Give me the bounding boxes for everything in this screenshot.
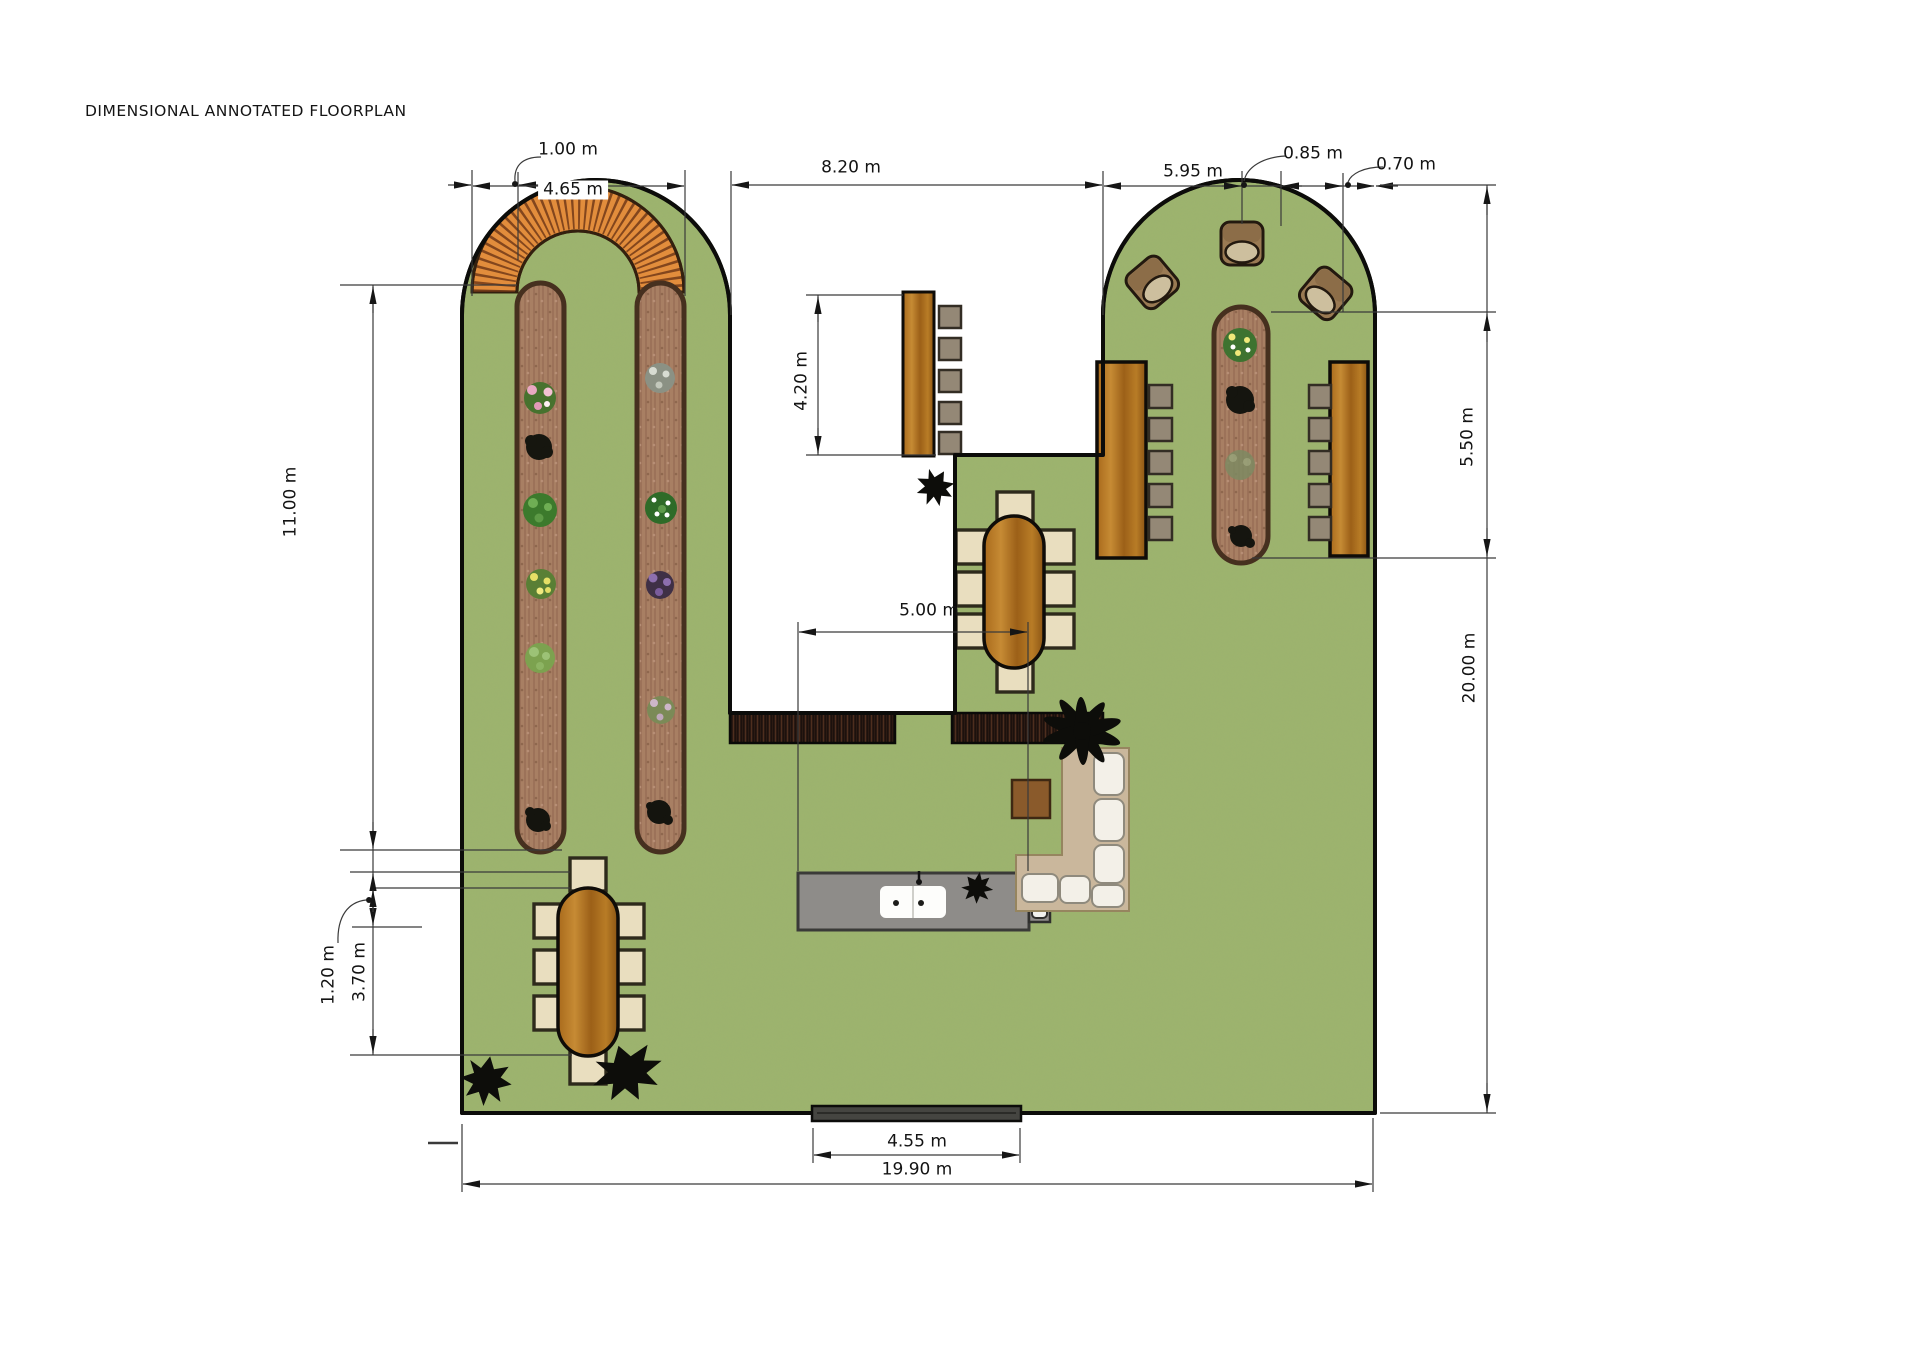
barrel-planter [1221,222,1263,265]
entry-step [812,1106,1021,1121]
dim-label-courtyard-width: 8.20 m [821,160,881,177]
dim-label-site-width: 19.90 m [882,1162,953,1179]
floorplan-drawing [0,0,1920,1357]
dining-table [558,888,618,1056]
dim-label-arc-diameter: 4.65 m [538,181,608,200]
dim-label-planter-width: 0.85 m [1283,146,1343,163]
dining-table [984,516,1044,668]
dim-label-table-offset: 1.20 m [321,945,338,1005]
dim-label-arc-band-width: 1.00 m [538,142,598,159]
coffee-table [1012,780,1050,818]
dim-label-site-height: 20.00 m [1462,633,1479,704]
dim-label-left-bed-length: 11.00 m [283,467,300,538]
page-title: DIMENSIONAL ANNOTATED FLOORPLAN [85,102,407,120]
bench-table-right [1330,362,1368,556]
kitchen-island [798,871,1050,930]
courtyard-potting-table [903,292,961,456]
dim-label-right-lobe-width: 5.95 m [1163,164,1223,181]
dim-label-step-width: 4.55 m [887,1134,947,1151]
dim-label-table-zone-length: 3.70 m [352,942,369,1002]
dim-label-island-length: 5.00 m [899,603,959,620]
planting-bed-left-1 [517,283,564,852]
floorplan-page: DIMENSIONAL ANNOTATED FLOORPLAN 1.00 m 4… [0,0,1920,1357]
dim-label-edge-gap: 0.70 m [1376,157,1436,174]
dim-label-bench-length: 4.20 m [794,351,811,411]
dim-label-right-bed-length: 5.50 m [1460,407,1477,467]
deck-strip-left [730,713,895,743]
